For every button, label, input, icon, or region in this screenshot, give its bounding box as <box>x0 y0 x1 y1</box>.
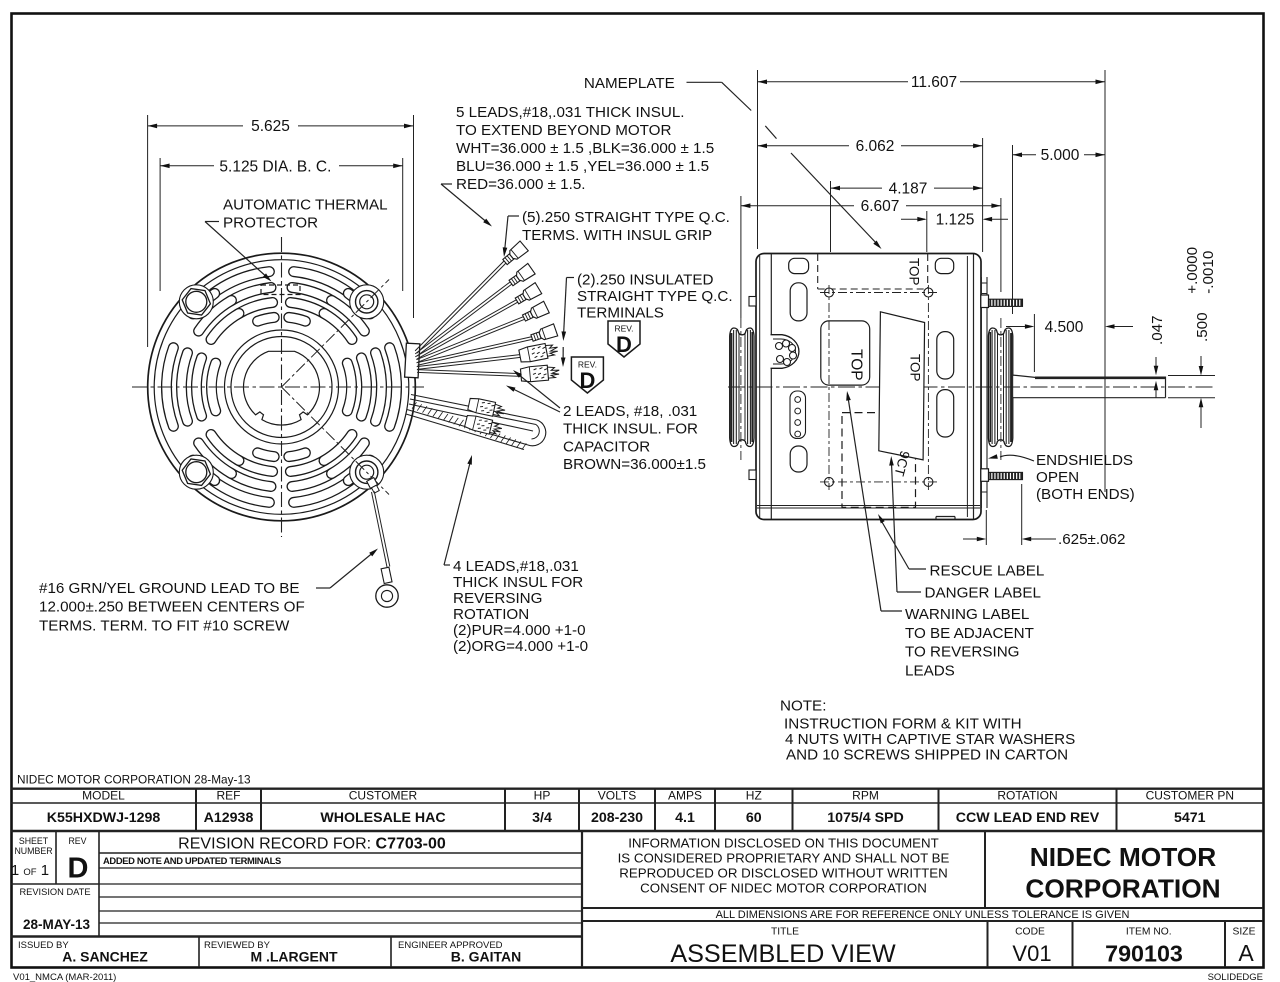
svg-text:.047: .047 <box>1149 315 1166 345</box>
svg-text:TO BE ADJACENT: TO BE ADJACENT <box>905 625 1034 642</box>
svg-text:NOTE:: NOTE: <box>780 698 826 715</box>
svg-text:5471: 5471 <box>1174 810 1206 826</box>
svg-text:RESCUE LABEL: RESCUE LABEL <box>930 563 1045 580</box>
svg-text:MODEL: MODEL <box>82 789 125 803</box>
svg-text:OPEN: OPEN <box>1036 469 1079 486</box>
svg-text:+.0000: +.0000 <box>1184 247 1201 294</box>
svg-text:V01: V01 <box>1012 941 1051 966</box>
svg-text:CODE: CODE <box>1015 927 1045 938</box>
svg-text:TO EXTEND BEYOND MOTOR: TO EXTEND BEYOND MOTOR <box>456 122 671 139</box>
svg-text:#16 GRN/YEL GROUND LEAD TO BE: #16 GRN/YEL GROUND LEAD TO BE <box>39 580 300 597</box>
svg-text:D: D <box>579 368 595 393</box>
svg-text:(2).250 INSULATED: (2).250 INSULATED <box>577 272 713 289</box>
svg-text:NUMBER: NUMBER <box>14 846 52 856</box>
svg-text:RPM: RPM <box>852 789 879 803</box>
svg-text:AND 10 SCREWS SHIPPED IN CART: AND 10 SCREWS SHIPPED IN CARTON <box>786 747 1068 764</box>
svg-text:5.000: 5.000 <box>1041 147 1080 164</box>
svg-text:ENDSHIELDS: ENDSHIELDS <box>1036 452 1133 469</box>
svg-text:M .LARGENT: M .LARGENT <box>250 949 338 965</box>
svg-text:B. GAITAN: B. GAITAN <box>451 949 522 965</box>
svg-text:4 LEADS,#18,.031: 4 LEADS,#18,.031 <box>453 558 579 575</box>
svg-text:IS CONSIDERED PROPRIETARY AND: IS CONSIDERED PROPRIETARY AND SHALL NOT … <box>618 851 950 866</box>
svg-text:RED=36.000 ± 1.5.: RED=36.000 ± 1.5. <box>456 176 586 193</box>
svg-text:11.607: 11.607 <box>911 74 957 91</box>
svg-text:A12938: A12938 <box>204 810 254 826</box>
svg-text:TERMS. WITH INSUL GRIP: TERMS. WITH INSUL GRIP <box>522 227 712 244</box>
svg-text:AMPS: AMPS <box>668 789 702 803</box>
svg-text:4.500: 4.500 <box>1045 319 1084 336</box>
svg-text:TERMINALS: TERMINALS <box>577 305 664 322</box>
svg-text:(BOTH ENDS): (BOTH ENDS) <box>1036 486 1135 503</box>
svg-text:D: D <box>68 853 89 885</box>
svg-text:REVISION DATE: REVISION DATE <box>19 887 90 897</box>
svg-text:CCW LEAD END REV: CCW LEAD END REV <box>956 810 1100 826</box>
svg-text:6.607: 6.607 <box>861 198 900 215</box>
svg-text:BROWN=36.000±1.5: BROWN=36.000±1.5 <box>563 456 706 473</box>
svg-text:790103: 790103 <box>1105 941 1183 967</box>
svg-text:THICK INSUL FOR: THICK INSUL FOR <box>453 574 583 591</box>
svg-text:HZ: HZ <box>746 789 762 803</box>
svg-text:INFORMATION DISCLOSED ON THIS: INFORMATION DISCLOSED ON THIS DOCUMENT <box>628 836 939 851</box>
svg-text:(2)ORG=4.000 +1-0: (2)ORG=4.000 +1-0 <box>453 638 588 655</box>
svg-text:WHOLESALE HAC: WHOLESALE HAC <box>320 810 445 826</box>
svg-text:4 NUTS WITH CAPTIVE STAR WASHE: 4 NUTS WITH CAPTIVE STAR WASHERS <box>785 731 1075 748</box>
svg-text:NIDEC MOTOR CORPORATION 28-May: NIDEC MOTOR CORPORATION 28-May-13 <box>17 773 251 787</box>
svg-text:5.125 DIA. B. C.: 5.125 DIA. B. C. <box>219 158 331 175</box>
svg-text:208-230: 208-230 <box>591 810 643 826</box>
svg-text:(5).250 STRAIGHT TYPE Q.C.: (5).250 STRAIGHT TYPE Q.C. <box>522 209 730 226</box>
svg-text:DANGER LABEL: DANGER LABEL <box>925 585 1041 602</box>
svg-text:-.0010: -.0010 <box>1200 251 1217 294</box>
svg-text:1.125: 1.125 <box>936 212 975 229</box>
svg-text:BLU=36.000 ± 1.5 ,YEL=36.000 ±: BLU=36.000 ± 1.5 ,YEL=36.000 ± 1.5 <box>456 158 709 175</box>
svg-text:D: D <box>616 332 632 357</box>
svg-text:4.1: 4.1 <box>675 810 695 826</box>
svg-text:.625±.062: .625±.062 <box>1058 531 1125 548</box>
svg-text:5.625: 5.625 <box>251 118 290 135</box>
svg-text:NIDEC MOTOR: NIDEC MOTOR <box>1030 842 1217 872</box>
svg-text:CONSENT OF NIDEC MOTOR CORPORA: CONSENT OF NIDEC MOTOR CORPORATION <box>640 881 927 896</box>
svg-text:WARNING LABEL: WARNING LABEL <box>905 606 1029 623</box>
svg-text:AUTOMATIC THERMAL: AUTOMATIC THERMAL <box>223 197 388 214</box>
svg-text:TOP: TOP <box>908 354 923 382</box>
svg-text:REVISION RECORD FOR: C7703-00: REVISION RECORD FOR: C7703-00 <box>178 836 446 853</box>
svg-text:4.187: 4.187 <box>889 180 928 197</box>
svg-text:SHEET: SHEET <box>19 836 49 846</box>
svg-text:V01_NMCA (MAR-2011): V01_NMCA (MAR-2011) <box>13 972 116 982</box>
svg-text:TO REVERSING: TO REVERSING <box>905 644 1020 661</box>
svg-text:VOLTS: VOLTS <box>598 789 636 803</box>
svg-text:1075/4 SPD: 1075/4 SPD <box>827 810 904 826</box>
svg-text:HP: HP <box>534 789 551 803</box>
svg-text:CUSTOMER PN: CUSTOMER PN <box>1146 789 1234 803</box>
svg-text:WHT=36.000 ± 1.5 ,BLK=36.000 ±: WHT=36.000 ± 1.5 ,BLK=36.000 ± 1.5 <box>456 140 714 157</box>
svg-text:CORPORATION: CORPORATION <box>1025 874 1220 904</box>
svg-text:K55HXDWJ-1298: K55HXDWJ-1298 <box>47 810 161 826</box>
svg-text:REVERSING: REVERSING <box>453 590 542 607</box>
svg-text:PROTECTOR: PROTECTOR <box>223 215 318 232</box>
svg-text:(2)PUR=4.000 +1-0: (2)PUR=4.000 +1-0 <box>453 622 586 639</box>
svg-text:INSTRUCTION FORM & KIT WITH: INSTRUCTION FORM & KIT WITH <box>784 716 1022 733</box>
svg-text:60: 60 <box>746 810 762 826</box>
svg-text:SIZE: SIZE <box>1233 927 1256 938</box>
svg-text:NAMEPLATE: NAMEPLATE <box>584 75 675 92</box>
svg-text:LEADS: LEADS <box>905 662 955 679</box>
svg-text:ADDED NOTE AND UPDATED TERMINA: ADDED NOTE AND UPDATED TERMINALS <box>103 855 281 866</box>
svg-text:STRAIGHT TYPE Q.C.: STRAIGHT TYPE Q.C. <box>577 288 733 305</box>
svg-text:THICK INSUL. FOR: THICK INSUL. FOR <box>563 421 698 438</box>
svg-text:5 LEADS,#18,.031 THICK INSUL.: 5 LEADS,#18,.031 THICK INSUL. <box>456 104 685 121</box>
svg-text:6.062: 6.062 <box>856 138 895 155</box>
svg-text:ROTATION: ROTATION <box>997 789 1057 803</box>
svg-text:A. SANCHEZ: A. SANCHEZ <box>62 949 148 965</box>
svg-text:A: A <box>1238 940 1254 966</box>
svg-text:REF: REF <box>217 789 241 803</box>
svg-text:ROTATION: ROTATION <box>453 606 529 623</box>
svg-text:12.000±.250 BETWEEN CENTERS OF: 12.000±.250 BETWEEN CENTERS OF <box>39 599 305 616</box>
svg-text:ALL DIMENSIONS ARE FOR REFEREN: ALL DIMENSIONS ARE FOR REFERENCE ONLY UN… <box>716 909 1130 921</box>
svg-text:ITEM NO.: ITEM NO. <box>1126 927 1172 938</box>
svg-text:TITLE: TITLE <box>771 927 799 938</box>
svg-text:TOP: TOP <box>907 258 922 286</box>
svg-text:REV: REV <box>68 836 86 846</box>
svg-text:SOLIDEDGE: SOLIDEDGE <box>1208 972 1263 982</box>
svg-text:CAPACITOR: CAPACITOR <box>563 438 650 455</box>
svg-text:CUSTOMER: CUSTOMER <box>349 789 418 803</box>
svg-text:ASSEMBLED VIEW: ASSEMBLED VIEW <box>670 940 896 968</box>
svg-text:28-MAY-13: 28-MAY-13 <box>23 917 91 932</box>
svg-text:TERMS. TERM. TO FIT #10 SCREW: TERMS. TERM. TO FIT #10 SCREW <box>39 617 290 634</box>
svg-text:3/4: 3/4 <box>532 810 552 826</box>
svg-text:2 LEADS, #18, .031: 2 LEADS, #18, .031 <box>563 403 697 420</box>
svg-text:.500: .500 <box>1194 312 1211 342</box>
svg-text:REPRODUCED OR DISCLOSED WITHOU: REPRODUCED OR DISCLOSED WITHOUT WRITTEN <box>619 866 948 881</box>
svg-text:TOP: TOP <box>848 349 865 381</box>
